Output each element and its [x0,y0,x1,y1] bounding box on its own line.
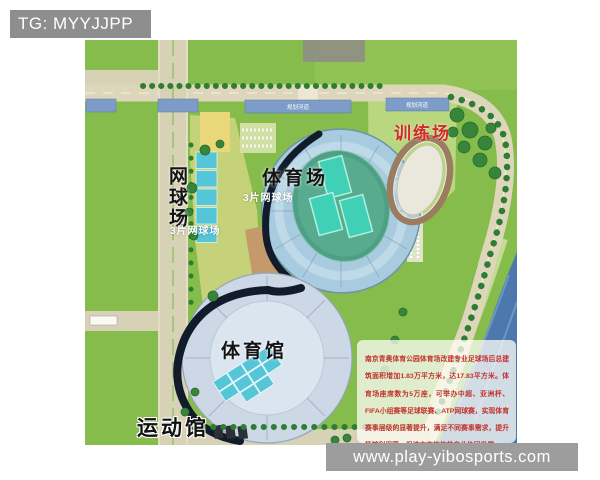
tennis-court [196,189,217,206]
tennis-courts-note: 3片网球场 [170,222,221,237]
stadium-label: 体育场 [262,163,328,190]
waterway-label: 规划河道 [287,103,310,111]
watermark-url-banner: www.play-yibosports.com [326,443,578,471]
parking-area-north [240,123,276,153]
tennis-court-label: 网球场 [163,166,190,229]
waterway-label: 规划河道 [406,101,429,109]
west-road [85,70,158,85]
waterway-box [158,99,198,112]
sports-hall-label: 运动馆 [137,412,209,442]
road-name-sign [90,316,117,325]
training-field-label: 训练场 [394,119,451,144]
telegram-tag-banner: TG: MYYJJPP [10,10,151,38]
existing-buildings-area [303,40,365,62]
stadium-courts-note: 3片网球场 [243,189,294,204]
waterway-box [86,99,116,112]
project-description-box: 南京青奥体育公园体育场改建专业足球场后总建筑面积增加1.83万平方米，达17.8… [357,340,516,443]
tennis-court [196,171,217,188]
gymnasium-label: 体育馆 [221,336,287,363]
screenshot-page: 规划河道 规划河道 [0,0,600,480]
